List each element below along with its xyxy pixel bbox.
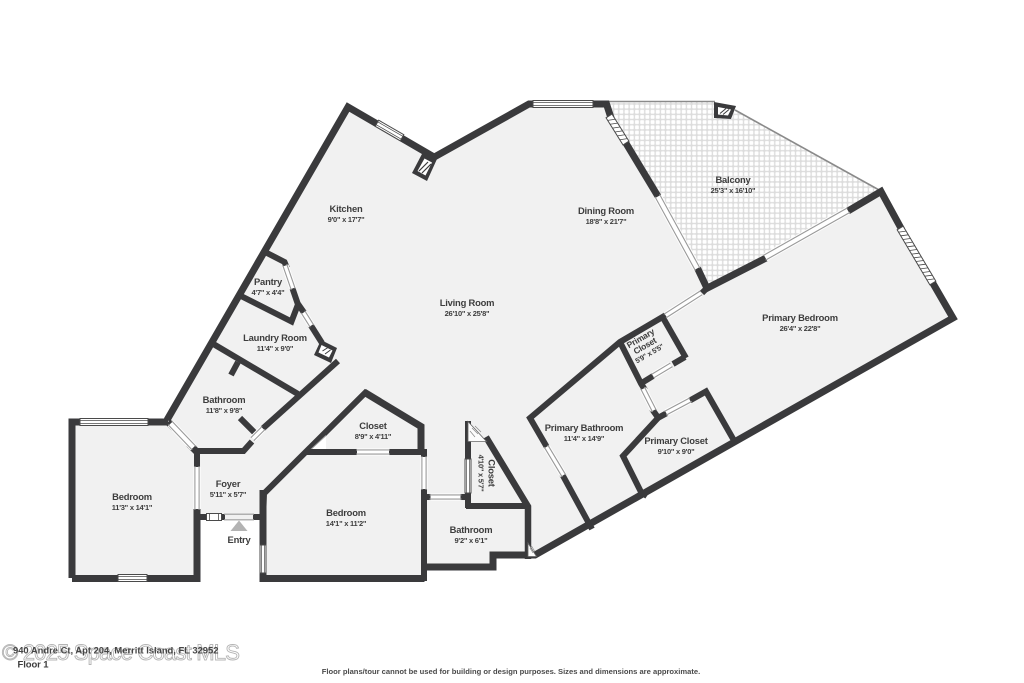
svg-text:Floor plans/tour cannot be use: Floor plans/tour cannot be used for buil… [322, 667, 700, 676]
svg-text:Entry: Entry [228, 534, 252, 545]
svg-text:9'2" x 6'1": 9'2" x 6'1" [455, 536, 489, 545]
svg-text:11'3" x 14'1": 11'3" x 14'1" [112, 503, 153, 512]
svg-text:Living Room: Living Room [440, 297, 495, 308]
svg-text:Floor 1: Floor 1 [18, 660, 50, 671]
svg-text:11'4" x 14'9": 11'4" x 14'9" [564, 434, 605, 443]
svg-text:18'8" x 21'7": 18'8" x 21'7" [586, 217, 627, 226]
svg-text:4'10" x 5'7": 4'10" x 5'7" [477, 455, 486, 493]
svg-text:8'9" x 4'11": 8'9" x 4'11" [355, 432, 392, 441]
svg-text:Balcony: Balcony [715, 174, 751, 185]
svg-text:Kitchen: Kitchen [330, 203, 363, 214]
svg-text:Bedroom: Bedroom [112, 491, 152, 502]
svg-text:26'10" x 25'8": 26'10" x 25'8" [445, 309, 490, 318]
svg-text:11'8" x 9'8": 11'8" x 9'8" [206, 406, 243, 415]
svg-text:Bedroom: Bedroom [326, 507, 366, 518]
svg-text:Pantry: Pantry [254, 276, 283, 287]
svg-text:Laundry Room: Laundry Room [243, 332, 307, 343]
svg-text:9'0" x 17'7": 9'0" x 17'7" [328, 215, 366, 224]
svg-text:Foyer: Foyer [216, 478, 241, 489]
svg-text:Dining Room: Dining Room [578, 205, 634, 216]
svg-text:4'7" x 4'4": 4'7" x 4'4" [252, 288, 286, 297]
svg-text:Closet: Closet [359, 420, 387, 431]
svg-text:Bathroom: Bathroom [203, 394, 246, 405]
svg-text:25'3" x 16'10": 25'3" x 16'10" [711, 186, 756, 195]
svg-text:26'4" x 22'8": 26'4" x 22'8" [780, 324, 821, 333]
svg-text:Primary Bathroom: Primary Bathroom [545, 422, 624, 433]
svg-text:940 Andre Ct, Apt 204, Merritt: 940 Andre Ct, Apt 204, Merritt Island, F… [13, 645, 218, 656]
svg-text:14'1" x 11'2": 14'1" x 11'2" [326, 519, 367, 528]
svg-text:Closet: Closet [487, 459, 498, 487]
svg-text:5'11" x 5'7": 5'11" x 5'7" [210, 490, 247, 499]
svg-text:Bathroom: Bathroom [450, 524, 493, 535]
svg-text:9'10" x 9'0": 9'10" x 9'0" [658, 447, 696, 456]
svg-text:Primary Closet: Primary Closet [644, 435, 707, 446]
svg-text:Primary Bedroom: Primary Bedroom [762, 312, 838, 323]
svg-text:11'4" x 9'0": 11'4" x 9'0" [257, 344, 294, 353]
